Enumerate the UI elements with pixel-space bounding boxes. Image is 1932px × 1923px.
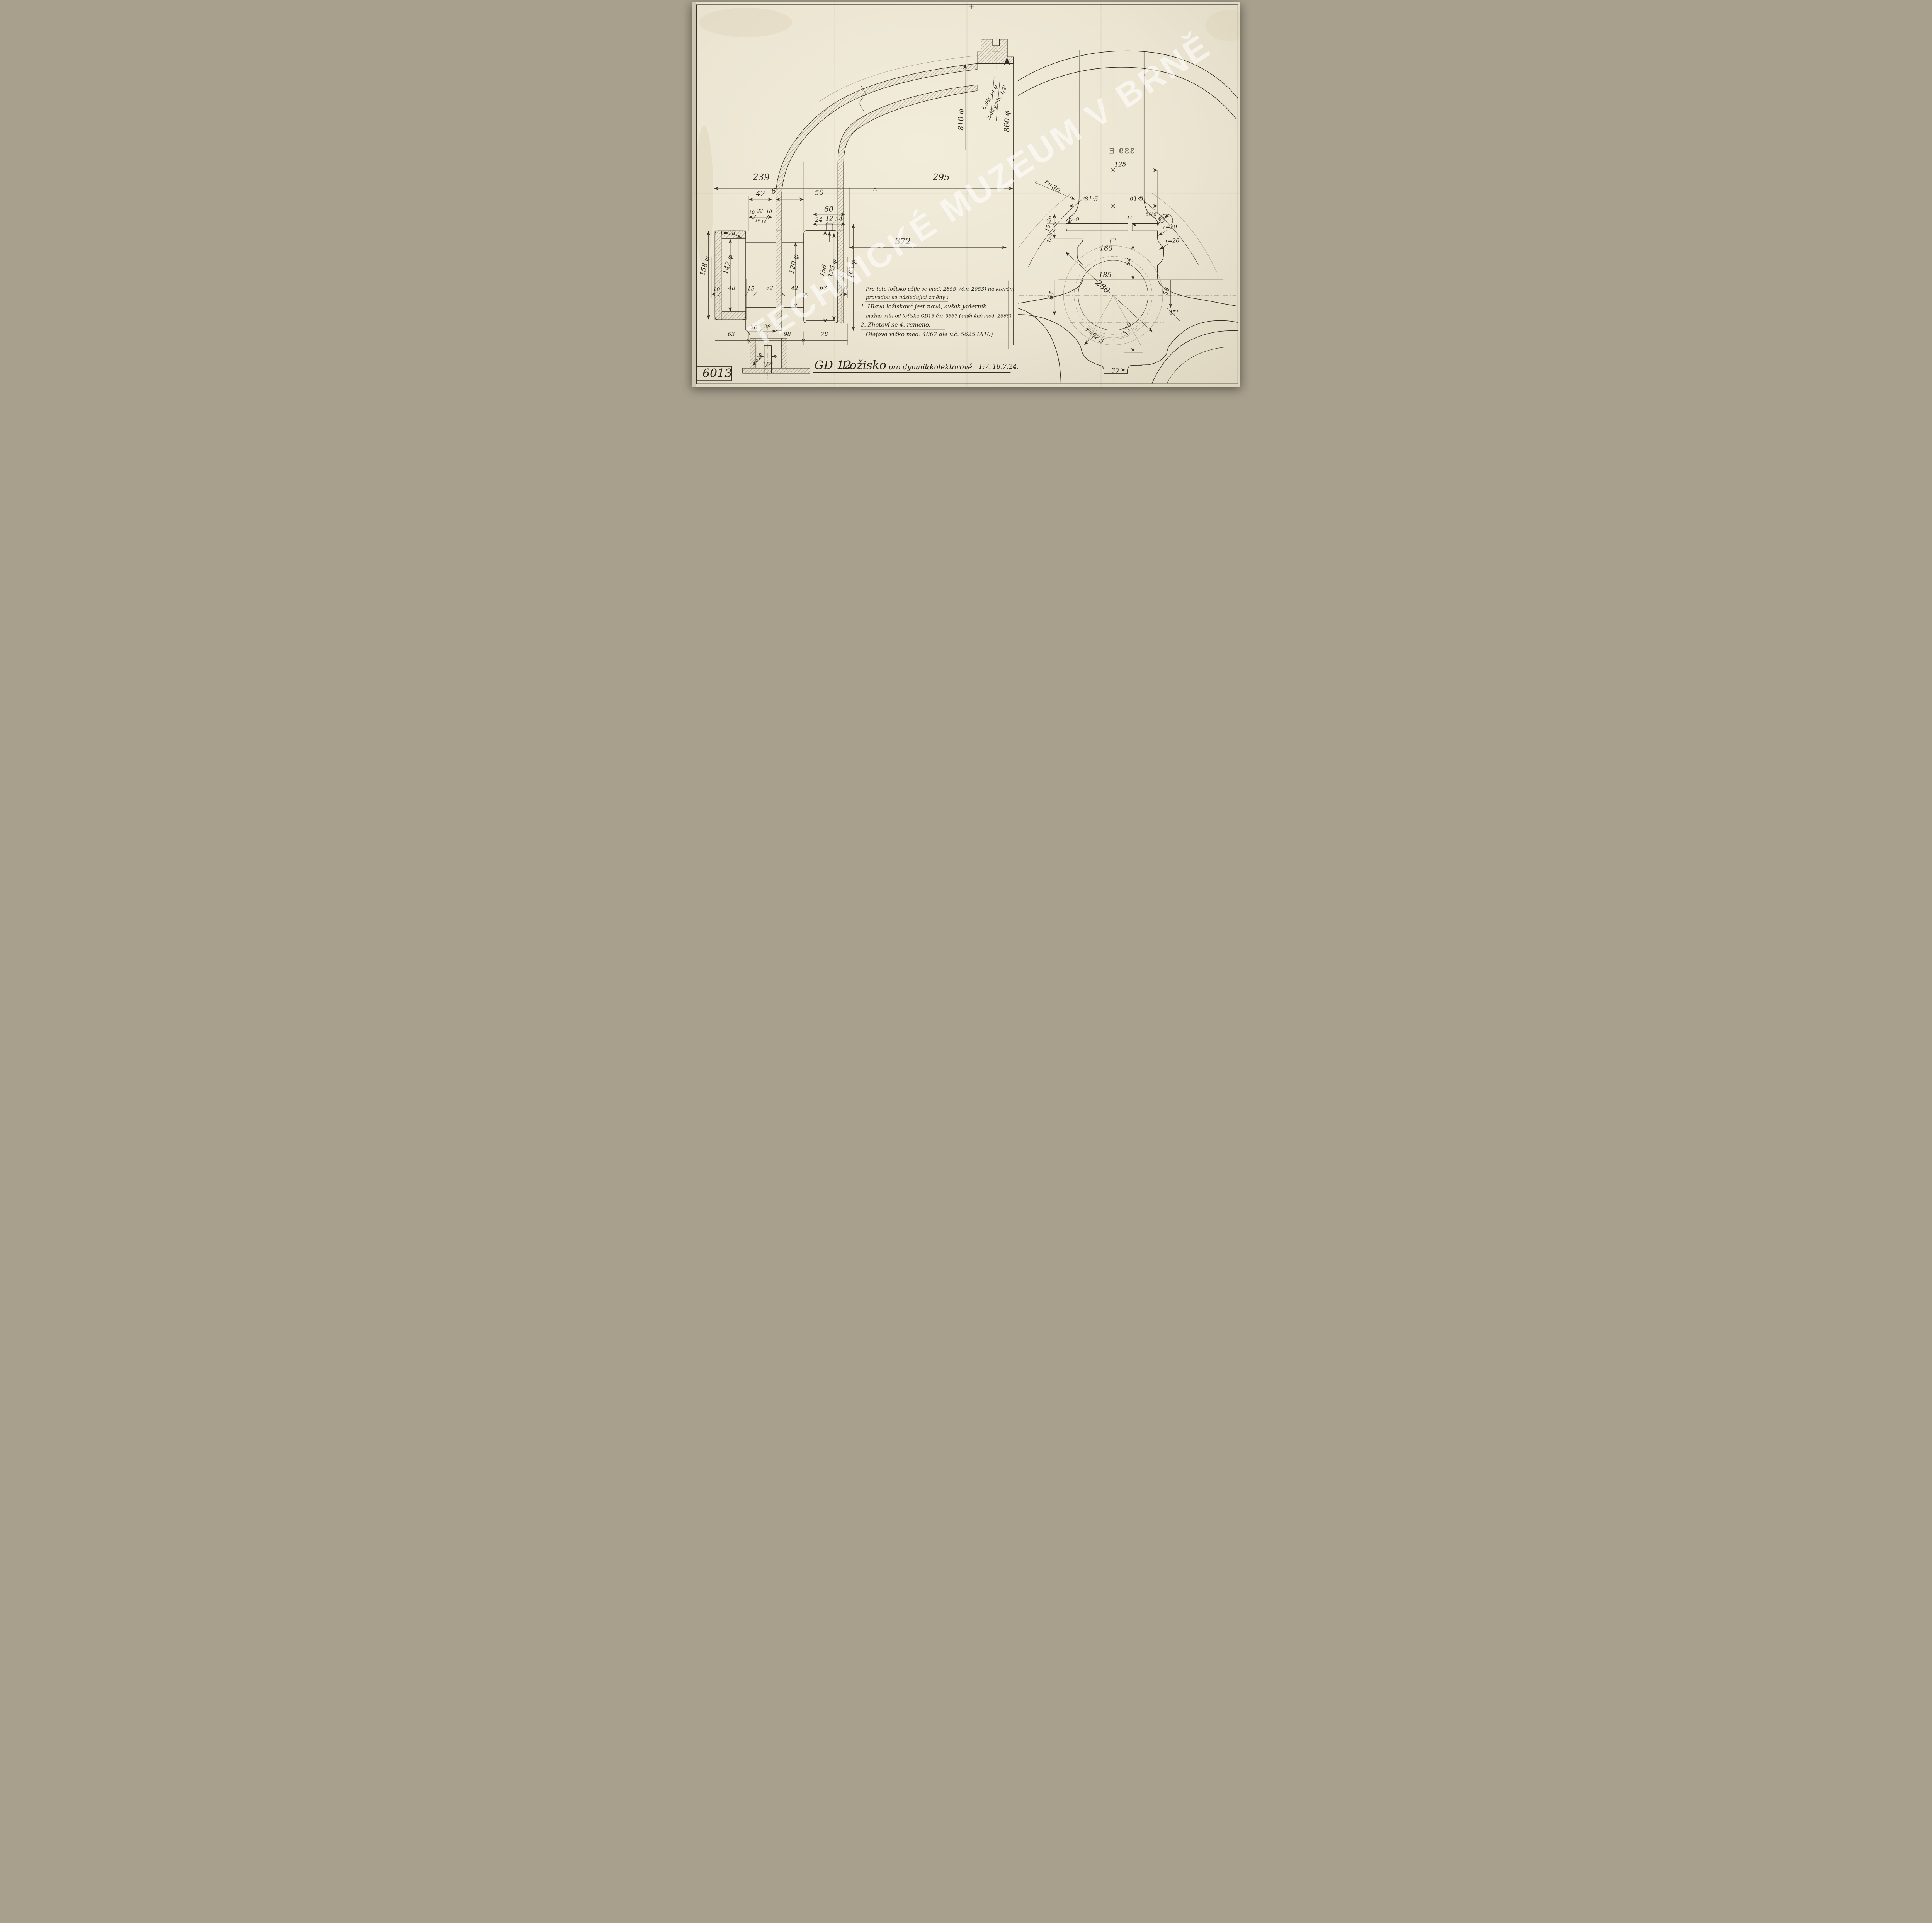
dim-label: 24 bbox=[815, 216, 823, 223]
dim-label: r=9 bbox=[1069, 216, 1079, 223]
dim-label: 67 bbox=[1047, 291, 1055, 300]
archive-stamp: 339 E bbox=[1108, 147, 1135, 156]
dim-label: 78 bbox=[821, 331, 828, 337]
flange-bottom-band bbox=[722, 312, 746, 320]
dim-label: 81·5 bbox=[1129, 195, 1143, 202]
dim-label: 10 bbox=[713, 286, 720, 293]
dim-label: 810 φ bbox=[957, 109, 965, 130]
dim-label: 295 bbox=[932, 172, 950, 182]
dim-label: 1/2" bbox=[762, 362, 774, 368]
dim-label: 15 bbox=[747, 286, 754, 292]
dim-label: 45° bbox=[1169, 310, 1179, 316]
dim-label: 30 bbox=[1112, 367, 1119, 374]
dim-label: 5/16" bbox=[1146, 211, 1158, 217]
drawing-sheet: 339 E 239295810 φ860 φ6 děr 14 φ2 díry z… bbox=[692, 2, 1240, 387]
flange-wall bbox=[715, 231, 722, 320]
title-date: 18.7.24. bbox=[993, 363, 1019, 370]
dim-label: 185 bbox=[1099, 271, 1112, 279]
dim-label: 10 bbox=[766, 209, 772, 214]
note-line: 2. Zhotoví se 4. rameno. bbox=[860, 322, 930, 328]
title-type: 2 kolektorové bbox=[923, 363, 972, 371]
stain bbox=[695, 126, 713, 265]
dim-label: 63 bbox=[728, 331, 735, 337]
dim-label: 22 bbox=[757, 208, 763, 213]
dim-label: 50 bbox=[815, 188, 824, 197]
dim-label: 6 bbox=[771, 187, 776, 195]
note-line: Pro toto ložisko užije se mod. 2855, (č.… bbox=[866, 286, 1014, 292]
dim-label: 42 bbox=[755, 189, 765, 198]
dim-label: 860 φ bbox=[1003, 110, 1011, 132]
title-name: Ložisko bbox=[842, 359, 886, 372]
dim-label: 24 bbox=[835, 216, 843, 223]
dim-label: 12 bbox=[825, 215, 833, 222]
note-line: Olejové víčko mod. 4867 dle v.č. 5625 (A… bbox=[866, 331, 993, 338]
title-scale: 1:7. bbox=[979, 363, 991, 370]
foot-wall-right bbox=[781, 338, 787, 368]
drawing-number: 6013 bbox=[702, 367, 732, 380]
stain bbox=[699, 8, 792, 37]
blueprint-canvas: 339 E 239295810 φ860 φ6 děr 14 φ2 díry z… bbox=[692, 2, 1240, 387]
dim-label: r=20 bbox=[1163, 224, 1177, 230]
dim-label: 12 bbox=[761, 219, 766, 223]
note-line: provedou se následující změny : bbox=[866, 294, 949, 300]
crease bbox=[1100, 2, 1102, 387]
foot-base bbox=[743, 368, 810, 373]
dim-label: 11 bbox=[1127, 214, 1133, 220]
dim-label: r=15 bbox=[721, 229, 736, 236]
dim-label: 60 bbox=[824, 205, 833, 213]
dim-label: 52 bbox=[766, 285, 773, 291]
dim-label: 10 bbox=[755, 218, 760, 223]
dim-label: 239 bbox=[752, 172, 770, 182]
dim-label: 81·5 bbox=[1084, 195, 1098, 203]
dim-label: 160 bbox=[1100, 245, 1113, 252]
dim-label: r=20 bbox=[1165, 238, 1179, 244]
dim-label: 48 bbox=[728, 286, 735, 292]
dim-label: 125 bbox=[1114, 160, 1126, 168]
note-line: 1. Hlava ložisková jest nová, avšak jade… bbox=[861, 303, 986, 310]
dim-label: 10 bbox=[749, 209, 755, 215]
note-line: možno vzíti od ložiska GD13 č.v. 5667 (z… bbox=[866, 313, 1012, 318]
notes-block: Pro toto ložisko užije se mod. 2855, (č.… bbox=[860, 281, 1014, 349]
crease bbox=[834, 2, 835, 387]
